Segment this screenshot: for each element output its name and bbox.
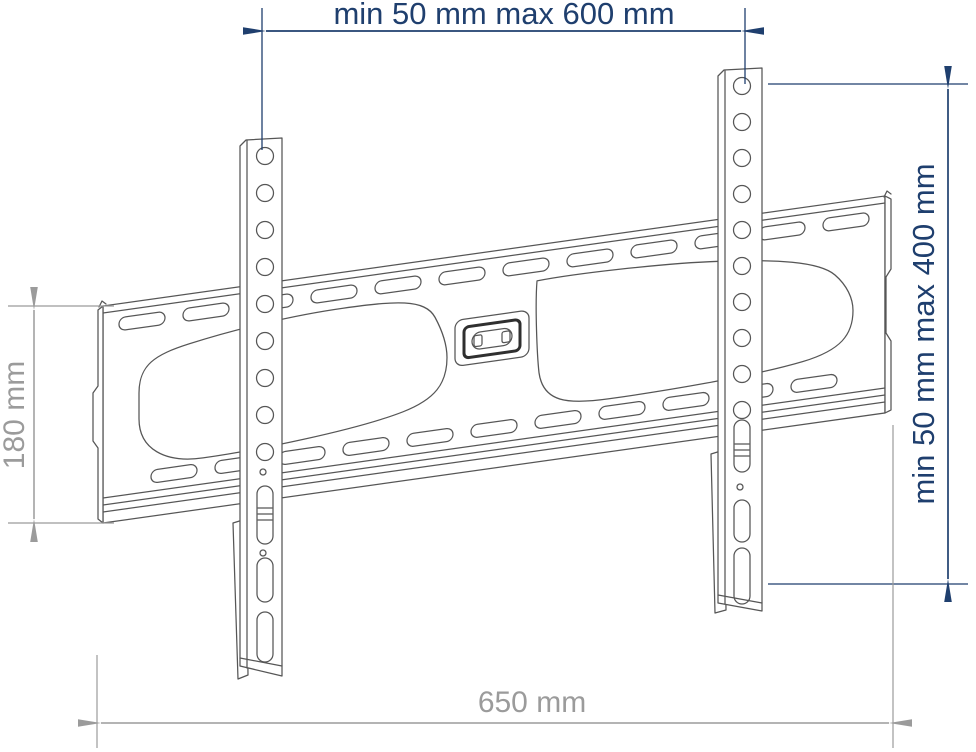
dimension-label: 650 mm — [478, 686, 586, 719]
dimension-top: min 50 mm max 600 mm — [262, 0, 745, 150]
end-cap-tab — [884, 191, 891, 197]
wall-plate — [103, 196, 885, 523]
wall-mount-bracket — [93, 68, 891, 679]
dimension-label: min 50 mm max 600 mm — [333, 0, 674, 31]
dimension-label: 180 mm — [0, 361, 31, 469]
end-cap-face — [93, 306, 103, 523]
dimension-label: min 50 mm max 400 mm — [906, 163, 941, 504]
left-vesa-rail — [233, 138, 282, 679]
wall-mount-dimension-diagram: min 50 mm max 600 mm min 50 mm max 400 m… — [0, 0, 976, 752]
right-vesa-rail — [711, 68, 762, 613]
plate-right-end-cap — [884, 191, 891, 413]
end-cap-face — [885, 196, 891, 413]
